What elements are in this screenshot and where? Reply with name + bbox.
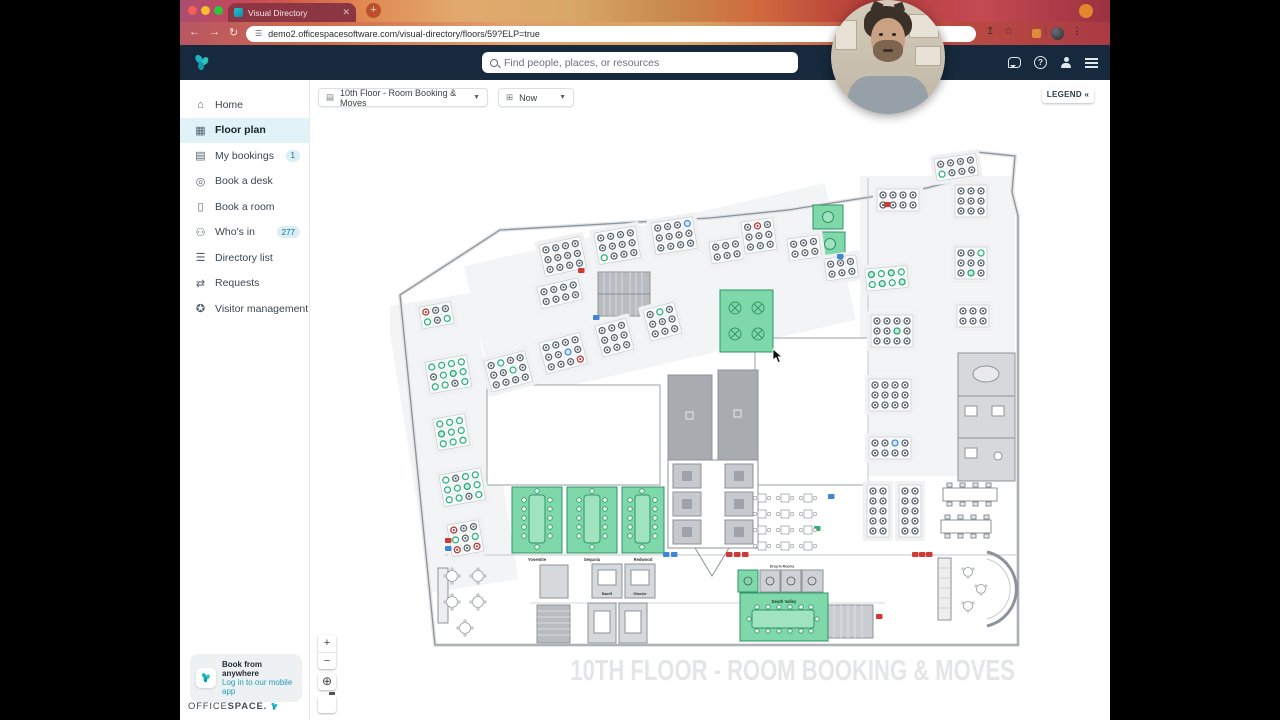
sidebar-item-label: My bookings [215,150,274,162]
officespace-logo-small-icon [270,702,279,711]
close-window-button[interactable] [188,6,197,15]
round-table [447,571,458,582]
desk-cluster[interactable] [865,375,915,415]
floor-title-watermark: 10TH FLOOR - ROOM BOOKING & MOVES [571,655,1015,688]
tab-favicon-icon [234,8,243,17]
wall-picture [915,46,941,66]
time-selector-label: Now [519,93,537,103]
tab-close-icon[interactable]: ✕ [342,8,350,17]
cafeteria-tables [941,483,997,538]
minimize-window-button[interactable] [201,6,210,15]
desk-cluster[interactable] [420,350,476,398]
room-redwood[interactable]: Redwood [622,487,664,562]
floorplan-marker [742,552,749,557]
zoom-out-button[interactable]: − [318,652,336,669]
cafe-table [781,510,789,518]
forward-icon[interactable]: → [209,26,220,38]
desk-cluster[interactable] [589,221,645,269]
browser-toolbar: ← → ↻ ☰ demo2.officespacesoftware.com/vi… [180,22,1110,45]
sidebar-item-label: Floor plan [215,124,266,136]
home-icon: ⌂ [194,99,207,111]
tab-title: Visual Directory [248,8,337,18]
cafe-table [758,494,766,502]
floorplan-marker [734,552,741,557]
help-icon[interactable]: ? [1034,56,1047,69]
sidebar-item-label: Visitor management [215,303,308,315]
floorplan-marker [445,538,452,543]
desk-cluster[interactable] [873,185,923,215]
hamburger-menu-icon[interactable] [1085,58,1098,60]
cafe-table [758,526,766,534]
person-eye [892,33,896,36]
desk-cluster[interactable] [895,481,925,541]
floorplan-marker [578,268,585,273]
new-tab-button[interactable]: + [366,3,381,18]
floor-selector-label: 10th Floor - Room Booking & Moves [340,88,467,108]
desk-cluster[interactable] [953,301,993,331]
cafe-table [781,494,789,502]
mouse-cursor [772,348,784,364]
sidebar: ⌂Home▦Floor plan▤My bookings1◎Book a des… [180,80,310,720]
desk-cluster[interactable] [951,243,991,283]
wall-picture [909,14,939,38]
desk-cluster[interactable] [863,481,893,541]
round-table [460,623,471,634]
desk-cluster[interactable] [861,261,913,295]
desk-cluster[interactable] [646,212,702,259]
cafe-table [758,542,766,550]
round-table [473,597,484,608]
visitor-management-icon: ✪ [194,302,207,315]
directory-list-icon: ☰ [194,251,207,264]
reload-icon[interactable]: ↻ [229,26,238,39]
desk-cluster[interactable] [736,213,781,258]
cafe-table [804,526,812,534]
desk-cluster[interactable] [782,230,826,265]
person-mouth [883,49,893,52]
room-green-upper[interactable] [720,290,773,352]
svg-text:Banff: Banff [602,591,613,596]
floor-selector-dropdown[interactable]: ▤ 10th Floor - Room Booking & Moves ▼ [318,88,488,107]
sidebar-item-directory-list[interactable]: ☰Directory list [180,245,309,271]
search-input[interactable] [504,57,790,69]
book-a-desk-icon: ◎ [194,175,207,188]
chevron-down-icon: ▼ [473,94,480,101]
mobile-app-promo[interactable]: Book from anywhere Log in to our mobile … [190,654,302,702]
site-settings-icon[interactable]: ☰ [255,29,262,38]
floorplan-marker [593,315,600,320]
desk-cluster[interactable] [867,311,917,351]
floorplan-marker [884,202,891,207]
share-icon[interactable]: ↥ [986,26,994,37]
cafe-table [781,526,789,534]
mobile-app-icon [196,668,216,688]
desk-cluster[interactable] [865,433,915,463]
sidebar-item-home[interactable]: ⌂Home [180,92,309,118]
sidebar-item-my-bookings[interactable]: ▤My bookings1 [180,143,309,169]
room-glacier[interactable]: Glacier [625,564,655,598]
room-banff[interactable]: Banff [592,564,622,598]
browser-profile-avatar[interactable] [1051,27,1064,40]
officespace-logo-icon[interactable] [192,53,212,73]
globe-icon[interactable]: ⊕ [318,673,336,690]
calendar-icon: ⊞ [506,92,513,103]
my-bookings-icon: ▤ [194,149,207,162]
browser-window: Visual Directory ✕ + ← → ↻ ☰ demo2.offic… [180,0,1110,720]
time-selector-dropdown[interactable]: ⊞ Now ▼ [498,88,574,107]
lounge-table [964,602,973,611]
floorplan-marker [445,546,452,551]
sidebar-item-label: Directory list [215,252,273,264]
promo-link[interactable]: Log in to our mobile app [222,678,296,696]
url-text: demo2.officespacesoftware.com/visual-dir… [268,29,540,39]
floor-icon: ▤ [326,92,334,103]
bookmark-star-icon[interactable]: ☆ [1004,26,1013,37]
browser-theme-ball [1079,4,1093,18]
floorplan-marker [912,552,919,557]
lounge-table [964,568,973,577]
elevator-bank [668,460,758,576]
service-core [718,370,758,460]
fit-view-control: ⊕ [318,673,336,690]
browser-tab[interactable]: Visual Directory ✕ [228,3,356,22]
drop-in-rooms[interactable]: Drop-In Rooms [738,565,823,593]
floorplan-marker [919,552,926,557]
round-table [447,597,458,608]
sidebar-item-who-s-in[interactable]: ⚇Who's in277 [180,220,309,246]
svg-text:Glacier: Glacier [633,591,647,596]
staircase [537,605,570,643]
floorplan-svg[interactable]: Yosemite Sequoia R [390,148,1020,648]
chevron-down-icon: ▼ [559,94,566,101]
cafe-table [804,542,812,550]
count-badge: 1 [286,150,300,162]
global-search[interactable] [482,52,798,73]
svg-text:Death Valley: Death Valley [772,599,797,604]
promo-title: Book from anywhere [222,660,296,678]
divider: | [1044,26,1047,37]
sidebar-item-floor-plan[interactable]: ▦Floor plan [180,118,309,144]
who-s-in-icon: ⚇ [194,226,207,239]
count-badge: 277 [277,226,300,238]
legend-toggle-button[interactable]: LEGEND « [1042,87,1094,103]
staircase [827,605,873,638]
browser-menu-icon[interactable]: ⋮ [1072,26,1082,37]
service-core [668,375,712,460]
svg-text:Redwood: Redwood [634,557,653,562]
sidebar-item-requests[interactable]: ⇄Requests [180,271,309,297]
sidebar-item-label: Requests [215,277,259,289]
svg-text:Sequoia: Sequoia [584,557,601,562]
sidebar-item-label: Book a desk [215,175,273,187]
search-icon [490,59,498,67]
zoom-in-button[interactable]: + [318,635,336,652]
floorplan-marker [663,552,670,557]
user-profile-icon[interactable] [1060,57,1072,69]
requests-icon: ⇄ [194,277,207,290]
cafe-table [781,542,789,550]
svg-text:Drop-In Rooms: Drop-In Rooms [770,565,795,569]
sidebar-item-book-a-desk[interactable]: ◎Book a desk [180,169,309,195]
print-control[interactable] [318,695,336,713]
room-sequoia[interactable]: Sequoia [567,487,617,562]
courtyard-left [487,385,660,485]
maximize-window-button[interactable] [214,6,223,15]
officespace-wordmark: OFFICESPACE. [188,701,279,712]
person-eye [879,33,883,36]
floor-plan-icon: ▦ [194,124,207,137]
floorplan-marker [926,552,933,557]
person-shirt [848,76,928,114]
desk-cluster[interactable] [951,181,991,221]
floorplan-marker [828,494,835,499]
floorplan-area: ▤ 10th Floor - Room Booking & Moves ▼ ⊞ … [310,80,1110,720]
sidebar-item-label: Book a room [215,201,275,213]
room-death-valley[interactable]: Death Valley [740,593,828,641]
sidebar-item-book-a-room[interactable]: ▯Book a room [180,194,309,220]
sidebar-item-label: Who's in [215,226,255,238]
webcam-overlay [831,0,945,114]
sidebar-item-label: Home [215,99,243,111]
cafe-table [804,510,812,518]
svg-text:Yosemite: Yosemite [528,557,547,562]
room-yosemite[interactable]: Yosemite [512,487,562,562]
cafe-table [804,494,812,502]
floorplan-marker [671,552,678,557]
wall-picture [835,20,857,50]
desk-cluster[interactable] [428,409,474,455]
desk-cluster[interactable] [434,463,490,511]
floorplan-marker [876,614,883,619]
chat-icon[interactable] [1008,57,1021,68]
round-table [473,571,484,582]
rooms-right-block [958,353,1015,481]
zoom-controls: + − [318,635,336,669]
floorplan-marker [726,552,733,557]
cafe-table [758,510,766,518]
extension-icon[interactable] [1032,29,1041,38]
sidebar-item-visitor-management[interactable]: ✪Visitor management [180,296,309,322]
lounge-table [977,585,986,594]
back-icon[interactable]: ← [189,26,200,38]
floorplan-marker [837,254,844,259]
book-a-room-icon: ▯ [194,200,207,213]
browser-tabstrip: Visual Directory ✕ + [180,0,1110,22]
app-navbar: ? [180,45,1110,80]
